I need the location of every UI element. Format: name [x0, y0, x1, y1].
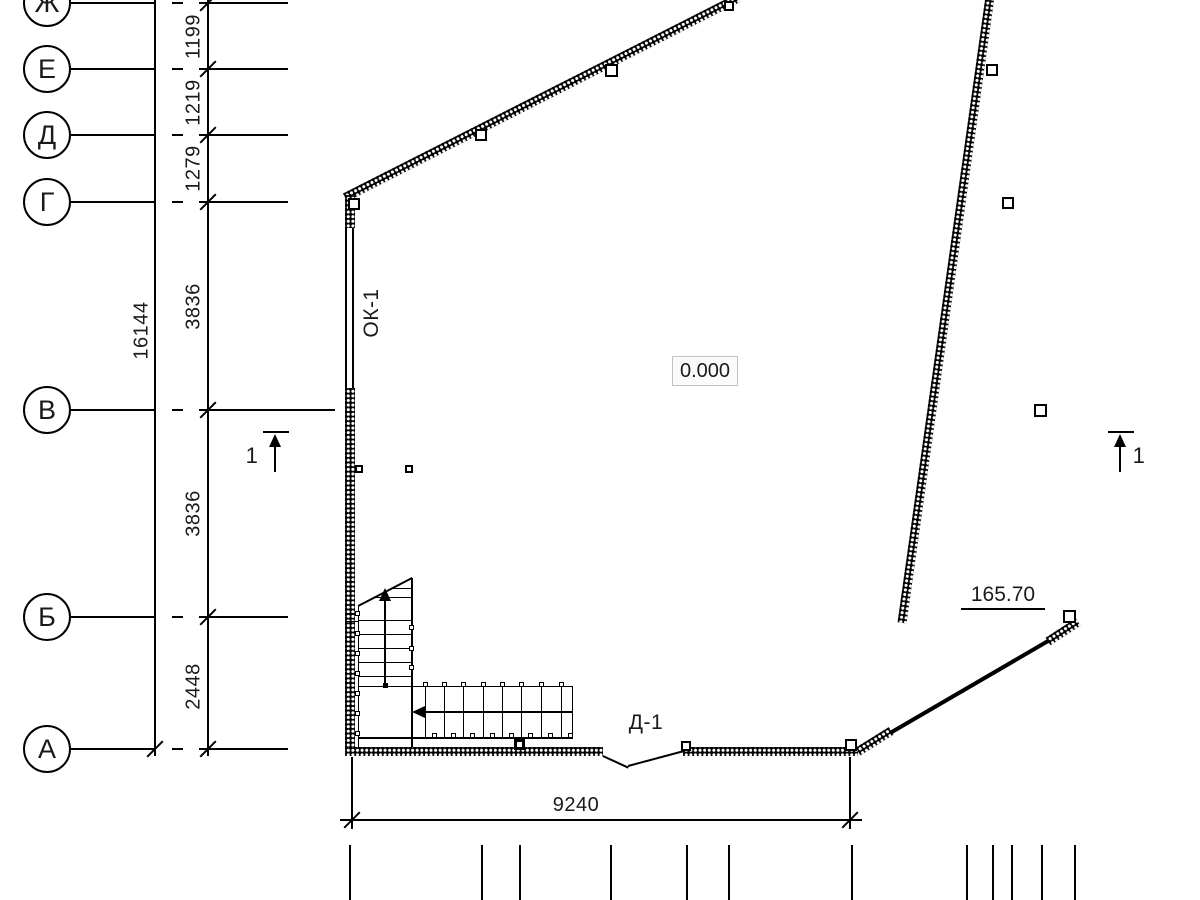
axis-label-4: В — [38, 395, 56, 426]
lower-dim-ext-line — [519, 845, 521, 900]
axis-line — [71, 2, 155, 4]
column-marker — [355, 465, 363, 473]
column-marker — [1063, 610, 1076, 623]
lower-dim-ext-line — [728, 845, 730, 900]
level-zero-box: 0.000 — [672, 356, 738, 386]
stair-post — [539, 682, 544, 687]
wall-top — [343, 0, 740, 201]
stair-post — [528, 733, 533, 738]
lower-dim-ext-line — [851, 845, 853, 900]
section-left-bar — [263, 431, 289, 433]
column-marker — [986, 64, 998, 76]
axis-label-1: Е — [38, 54, 56, 85]
section-right-bar — [1108, 431, 1134, 433]
axis-line-dash — [172, 748, 183, 750]
door-leaf-line-left — [603, 755, 629, 768]
door-leaf-line-right — [628, 750, 684, 766]
axis-line — [199, 748, 288, 750]
axis-line-dash — [172, 68, 183, 70]
axis-circle-0: Ж — [23, 0, 71, 27]
section-right-number: 1 — [1128, 443, 1150, 469]
stair-post — [470, 733, 475, 738]
lower-dim-ext-line — [1074, 845, 1076, 900]
section-left-number: 1 — [241, 443, 263, 469]
axis-line — [199, 68, 288, 70]
stair-post — [481, 682, 486, 687]
column-marker — [1002, 197, 1014, 209]
dimension-label-2: 1279 — [183, 134, 206, 204]
dim-line-9240 — [340, 819, 862, 821]
stair-post — [548, 733, 553, 738]
axis-circle-5: Б — [23, 593, 71, 641]
lower-dim-ext-line — [349, 845, 351, 900]
stair-post — [442, 682, 447, 687]
stair-tread — [392, 588, 412, 589]
level-mark-label: 165.70 — [961, 583, 1045, 610]
lower-dim-ext-line — [481, 845, 483, 900]
axis-line — [71, 134, 155, 136]
dimension-label-1: 1219 — [183, 68, 206, 138]
window-label: ОК-1 — [360, 278, 384, 348]
dimension-label-4: 3836 — [183, 479, 206, 549]
grid-chain-line-2 — [207, 0, 209, 756]
total-dim-label: 16144 — [131, 291, 154, 371]
wall-right — [898, 0, 994, 624]
axis-line — [71, 748, 155, 750]
axis-line — [199, 616, 288, 618]
floor-plan: 0.000 165.70 ОК-1 Д-1 9240 16144 1 1 ЖЕД… — [0, 0, 1200, 900]
section-left-shaft — [274, 446, 276, 472]
stair-post — [409, 665, 414, 670]
column-marker — [475, 129, 487, 141]
level-zero-label: 0.000 — [680, 360, 730, 383]
axis-line — [71, 616, 155, 618]
stair-post — [432, 733, 437, 738]
axis-circle-2: Д — [23, 111, 71, 159]
wall-bottom-right — [683, 747, 858, 756]
stair-post — [500, 682, 505, 687]
axis-line-dash — [172, 2, 183, 4]
column-marker — [514, 739, 525, 750]
stair-wall-connector — [345, 621, 358, 623]
axis-line — [71, 68, 155, 70]
lower-dim-ext-line — [610, 845, 612, 900]
column-marker — [605, 64, 618, 77]
wall-corner-stub-lower — [856, 727, 894, 755]
stair-post — [559, 682, 564, 687]
stair-walkline-vertical — [384, 600, 386, 685]
axis-line — [199, 134, 288, 136]
window-ok1-inner-line — [352, 228, 354, 388]
column-marker — [845, 739, 857, 751]
dimension-label-0: 1199 — [183, 2, 206, 72]
door-label: Д-1 — [616, 711, 676, 735]
stair-post — [461, 682, 466, 687]
axis-label-0: Ж — [35, 0, 60, 19]
grid-chain-line-1 — [154, 0, 156, 756]
axis-line — [71, 409, 155, 411]
lower-dim-ext-line — [686, 845, 688, 900]
column-marker — [1034, 404, 1047, 417]
axis-circle-4: В — [23, 386, 71, 434]
dimension-label-5: 2448 — [183, 652, 206, 722]
lower-dim-ext-line — [1011, 845, 1013, 900]
lower-dim-ext-line — [1041, 845, 1043, 900]
axis-line — [199, 409, 335, 411]
lower-dim-ext-line — [966, 845, 968, 900]
stair-post — [355, 631, 360, 636]
axis-label-3: Г — [40, 187, 55, 218]
stair-left-arrow-icon — [412, 706, 425, 718]
axis-line — [199, 2, 288, 4]
column-marker — [405, 465, 413, 473]
wall-bottom-left — [345, 747, 603, 756]
column-marker — [724, 1, 734, 11]
stair-up-arrow-icon — [379, 588, 391, 601]
stair-walkline-node — [383, 683, 388, 688]
stair-post — [519, 682, 524, 687]
axis-circle-6: А — [23, 725, 71, 773]
window-ok1-outer-line — [345, 228, 347, 388]
stair-post — [355, 611, 360, 616]
stair-post — [355, 731, 360, 736]
stair-walkline-horizontal — [424, 711, 572, 713]
stair-post — [423, 682, 428, 687]
axis-label-2: Д — [38, 120, 56, 151]
stair-post — [490, 733, 495, 738]
axis-circle-1: Е — [23, 45, 71, 93]
axis-line-dash — [172, 201, 183, 203]
axis-line-dash — [172, 409, 183, 411]
stair-post — [451, 733, 456, 738]
column-marker — [348, 198, 360, 210]
axis-line-dash — [172, 134, 183, 136]
wall-left-lower — [345, 388, 355, 747]
stair-post — [355, 691, 360, 696]
axis-circle-3: Г — [23, 178, 71, 226]
axis-line — [71, 201, 155, 203]
stair-post — [509, 733, 514, 738]
axis-label-5: Б — [38, 602, 56, 633]
column-marker — [681, 741, 691, 751]
stair-post — [355, 711, 360, 716]
stair-post — [568, 733, 573, 738]
stair-post — [409, 646, 414, 651]
stair-post — [355, 651, 360, 656]
stair-post — [409, 625, 414, 630]
wall-opening-line — [889, 639, 1050, 735]
dimension-label-3: 3836 — [183, 272, 206, 342]
bottom-dim-label: 9240 — [516, 794, 636, 817]
lower-dim-ext-line — [992, 845, 994, 900]
section-right-shaft — [1119, 446, 1121, 472]
axis-line-dash — [172, 616, 183, 618]
axis-line — [199, 201, 288, 203]
stair-post — [355, 671, 360, 676]
axis-label-6: А — [38, 734, 56, 765]
